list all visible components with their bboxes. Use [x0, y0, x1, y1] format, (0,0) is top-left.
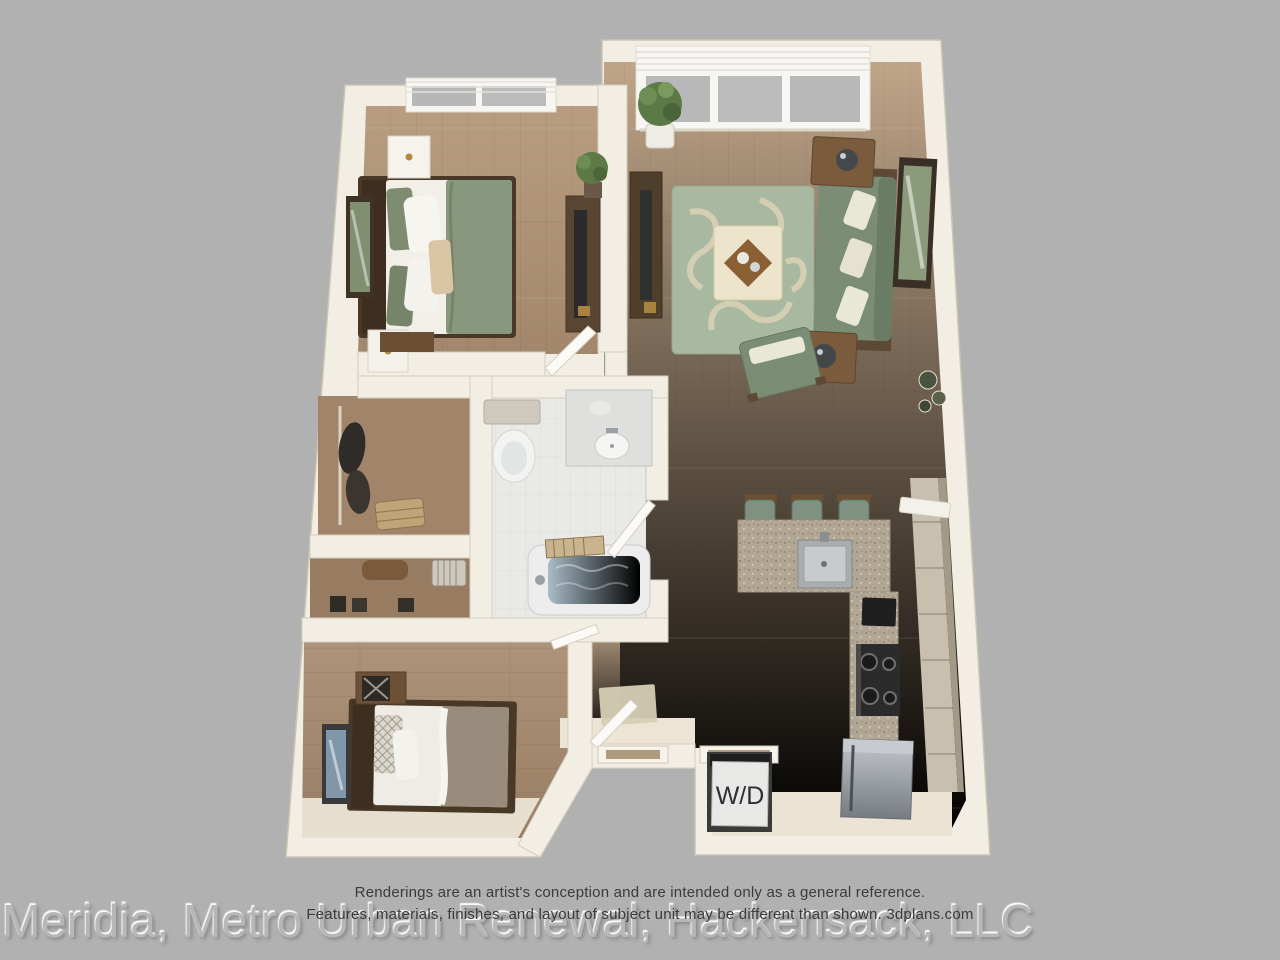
bathtub — [528, 536, 650, 615]
living-tv-console — [630, 172, 662, 318]
apartment: W/D — [286, 40, 990, 857]
nightstand-bedroom2 — [356, 672, 406, 704]
shoes-2 — [352, 598, 367, 612]
green-duvet — [446, 180, 512, 334]
taupe-duvet — [441, 706, 509, 807]
folded-sheet — [441, 708, 446, 804]
bed-queen — [358, 176, 516, 338]
wall-closet-divider — [310, 535, 470, 558]
bed-twin — [347, 699, 517, 814]
laundry-closet: W/D — [707, 752, 772, 832]
tan-accent-pillow — [428, 239, 454, 294]
oven-handle — [856, 644, 861, 716]
shoes-3 — [398, 598, 414, 612]
closet-basket — [375, 498, 426, 531]
bedroom1-bench — [380, 332, 434, 352]
kitchen-faucet — [820, 532, 829, 542]
living-wall-art — [893, 157, 938, 289]
bath-caddy — [545, 536, 604, 558]
disclaimer-line-2: Features, materials, finishes, and layou… — [0, 906, 1280, 924]
nightstand-upper — [388, 136, 430, 178]
bedroom1-wall-art — [346, 196, 374, 298]
floorplan-rendering: W/D Meridia, Metro Urban Renewal, Hacken… — [0, 0, 1280, 960]
kitchen-sink — [798, 532, 852, 588]
sofa — [811, 167, 897, 352]
wall-bedroom1-living — [598, 85, 627, 352]
floorplan-canvas: W/D — [0, 0, 1280, 960]
ottoman-coffee-table — [714, 226, 782, 300]
tub-water — [548, 556, 640, 604]
microwave — [862, 597, 897, 626]
shoes-1 — [330, 596, 346, 612]
tv-bedroom1 — [574, 210, 587, 318]
headboard-2 — [351, 701, 375, 809]
wire-basket — [432, 560, 466, 586]
white-pillow-3 — [392, 729, 420, 781]
refrigerator — [841, 739, 914, 819]
floor-vent-1 — [598, 746, 668, 763]
bolster-pillow — [362, 560, 408, 580]
wall-bedroom1-south-right — [605, 352, 627, 376]
tub-faucet — [535, 575, 545, 585]
lamp-north — [836, 149, 858, 171]
bedroom2-wall-art — [322, 724, 350, 804]
tv-living — [640, 190, 652, 300]
faucet — [606, 428, 618, 433]
sink-vanity — [566, 390, 652, 466]
bedroom1-dresser-tv — [566, 196, 600, 332]
wall-bedroom2-north — [302, 618, 668, 642]
laundry-label: W/D — [716, 782, 765, 810]
end-table-north — [811, 136, 875, 187]
stove-cooktop — [856, 644, 900, 716]
bedroom1-window — [406, 78, 556, 112]
disclaimer-line-1: Renderings are an artist's conception an… — [0, 884, 1280, 902]
